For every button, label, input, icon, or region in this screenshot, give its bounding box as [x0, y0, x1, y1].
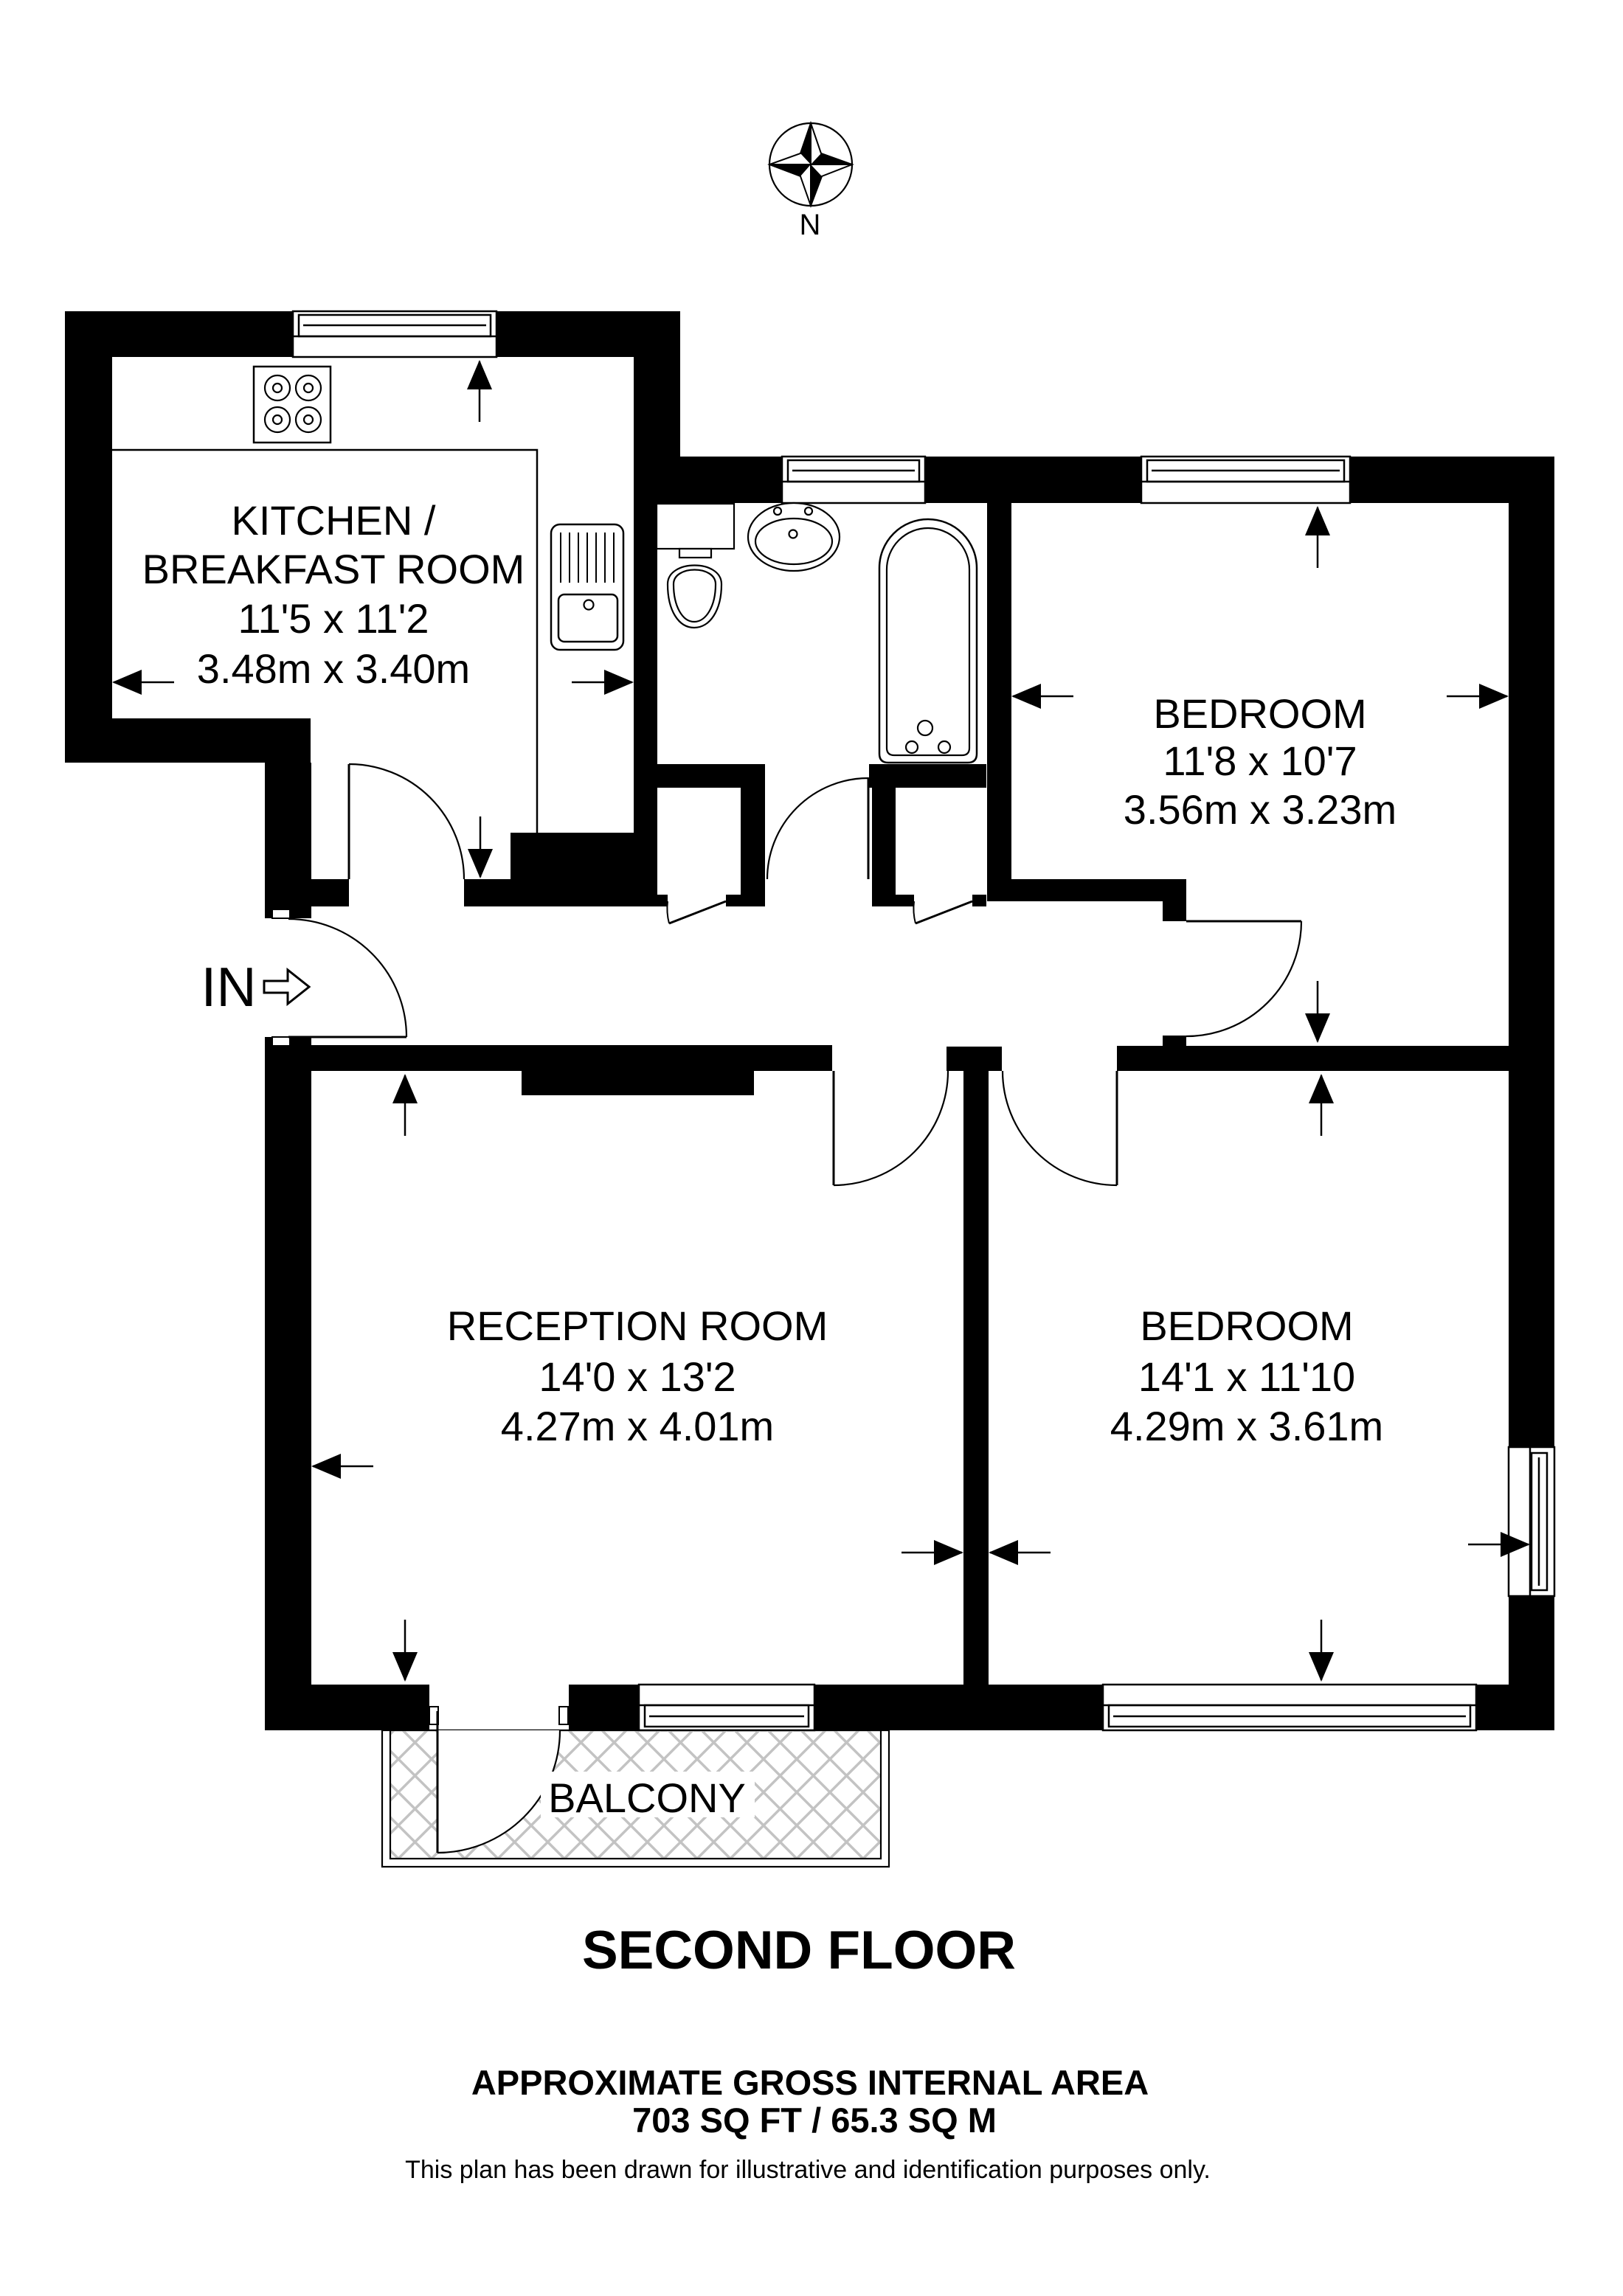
svg-text:SECOND FLOOR: SECOND FLOOR: [582, 1921, 1016, 1980]
svg-text:14'0 x 13'2: 14'0 x 13'2: [539, 1353, 736, 1400]
svg-text:3.48m x 3.40m: 3.48m x 3.40m: [197, 645, 470, 692]
svg-text:KITCHEN /: KITCHEN /: [232, 497, 436, 544]
svg-text:703 SQ FT / 65.3 SQ M: 703 SQ FT / 65.3 SQ M: [632, 2101, 997, 2140]
svg-text:N: N: [800, 209, 821, 241]
svg-text:3.56m x 3.23m: 3.56m x 3.23m: [1124, 786, 1397, 833]
svg-text:BEDROOM: BEDROOM: [1153, 690, 1366, 737]
svg-text:RECEPTION ROOM: RECEPTION ROOM: [447, 1303, 828, 1349]
svg-text:BREAKFAST ROOM: BREAKFAST ROOM: [142, 546, 525, 592]
svg-text:BEDROOM: BEDROOM: [1140, 1303, 1353, 1349]
svg-text:11'8 x 10'7: 11'8 x 10'7: [1163, 738, 1357, 784]
svg-text:APPROXIMATE GROSS INTERNAL ARE: APPROXIMATE GROSS INTERNAL AREA: [471, 2063, 1149, 2102]
svg-text:4.27m x 4.01m: 4.27m x 4.01m: [501, 1403, 774, 1449]
svg-text:IN: IN: [201, 956, 257, 1018]
svg-text:11'5 x 11'2: 11'5 x 11'2: [238, 595, 429, 642]
svg-text:4.29m x 3.61m: 4.29m x 3.61m: [1110, 1403, 1383, 1449]
svg-text:This plan has been drawn for i: This plan has been drawn for illustrativ…: [405, 2156, 1211, 2184]
svg-text:BALCONY: BALCONY: [548, 1775, 746, 1821]
svg-text:14'1 x 11'10: 14'1 x 11'10: [1138, 1353, 1355, 1400]
